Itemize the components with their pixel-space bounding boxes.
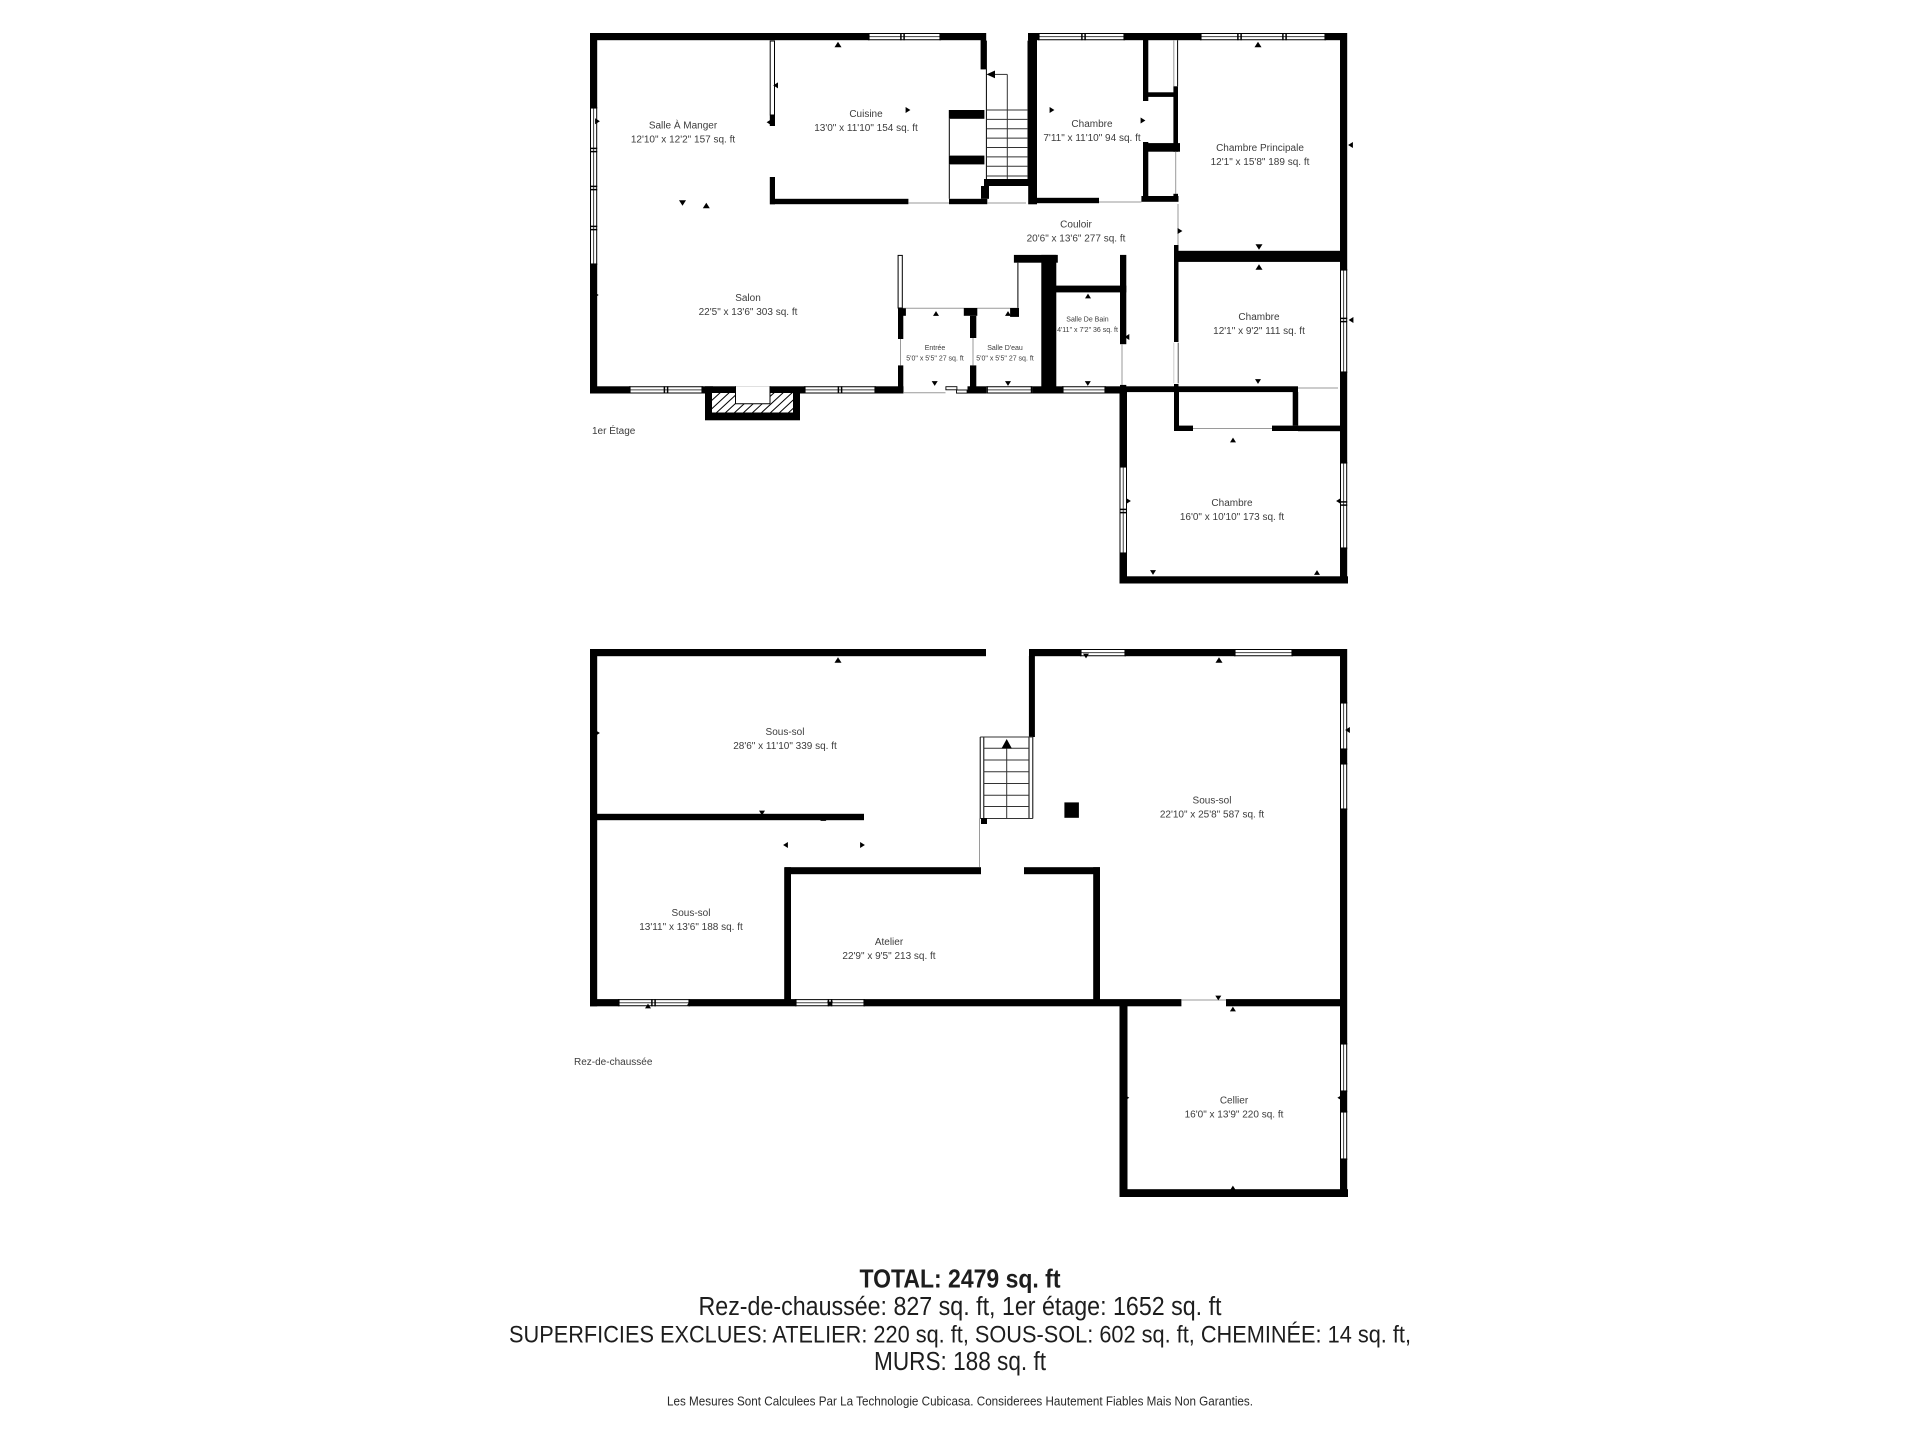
svg-text:Entrée: Entrée	[925, 345, 946, 352]
svg-text:13'11" x 13'6" 188 sq. ft: 13'11" x 13'6" 188 sq. ft	[639, 922, 743, 933]
svg-text:Rez-de-chaussée: Rez-de-chaussée	[574, 1057, 653, 1068]
svg-text:MURS: 188 sq. ft: MURS: 188 sq. ft	[874, 1348, 1046, 1376]
svg-text:5'0" x 5'5" 27 sq. ft: 5'0" x 5'5" 27 sq. ft	[976, 356, 1034, 363]
svg-text:20'6" x 13'6" 277 sq. ft: 20'6" x 13'6" 277 sq. ft	[1027, 234, 1126, 245]
svg-text:12'1" x 15'8" 189 sq. ft: 12'1" x 15'8" 189 sq. ft	[1211, 157, 1310, 168]
svg-text:Salon: Salon	[735, 293, 761, 304]
svg-text:TOTAL: 2479 sq. ft: TOTAL: 2479 sq. ft	[860, 1264, 1061, 1294]
svg-text:12'10" x 12'2" 157 sq. ft: 12'10" x 12'2" 157 sq. ft	[631, 135, 736, 146]
svg-text:Chambre: Chambre	[1211, 498, 1253, 509]
svg-text:Cuisine: Cuisine	[849, 109, 883, 120]
svg-text:28'6" x 11'10" 339 sq. ft: 28'6" x 11'10" 339 sq. ft	[733, 741, 837, 752]
svg-text:Rez-de-chaussée: 827 sq. ft, 1: Rez-de-chaussée: 827 sq. ft, 1er étage: …	[699, 1293, 1222, 1321]
svg-text:22'5" x 13'6" 303 sq. ft: 22'5" x 13'6" 303 sq. ft	[699, 307, 798, 318]
svg-text:SUPERFICIES EXCLUES: ATELIER:: SUPERFICIES EXCLUES: ATELIER: 220 sq. ft…	[509, 1322, 1411, 1349]
svg-text:Sous-sol: Sous-sol	[672, 908, 711, 919]
svg-text:Atelier: Atelier	[875, 937, 904, 948]
svg-text:22'9" x 9'5" 213 sq. ft: 22'9" x 9'5" 213 sq. ft	[842, 951, 935, 962]
svg-text:22'10" x 25'8" 587 sq. ft: 22'10" x 25'8" 587 sq. ft	[1160, 810, 1265, 821]
svg-text:Salle À Manger: Salle À Manger	[649, 119, 718, 132]
svg-text:4'11" x 7'2" 36 sq. ft: 4'11" x 7'2" 36 sq. ft	[1057, 327, 1118, 334]
svg-text:Les Mesures Sont Calculees Par: Les Mesures Sont Calculees Par La Techno…	[667, 1395, 1253, 1409]
svg-text:16'0" x 13'9" 220 sq. ft: 16'0" x 13'9" 220 sq. ft	[1185, 1110, 1284, 1121]
svg-text:Salle De Bain: Salle De Bain	[1066, 317, 1109, 324]
svg-text:1er Étage: 1er Étage	[592, 424, 636, 437]
svg-text:12'1" x 9'2" 111 sq. ft: 12'1" x 9'2" 111 sq. ft	[1213, 326, 1305, 337]
svg-text:Sous-sol: Sous-sol	[1193, 796, 1232, 807]
svg-text:13'0" x 11'10" 154 sq. ft: 13'0" x 11'10" 154 sq. ft	[814, 123, 918, 134]
svg-text:Chambre: Chambre	[1238, 312, 1280, 323]
svg-text:Sous-sol: Sous-sol	[766, 727, 805, 738]
svg-text:5'0" x 5'5" 27 sq. ft: 5'0" x 5'5" 27 sq. ft	[906, 356, 964, 363]
svg-text:Chambre Principale: Chambre Principale	[1216, 143, 1304, 154]
svg-text:Couloir: Couloir	[1060, 220, 1092, 231]
svg-text:16'0" x 10'10" 173 sq. ft: 16'0" x 10'10" 173 sq. ft	[1180, 512, 1285, 523]
svg-text:Salle D'eau: Salle D'eau	[987, 345, 1023, 352]
svg-text:Cellier: Cellier	[1220, 1096, 1249, 1107]
svg-text:7'11" x 11'10" 94 sq. ft: 7'11" x 11'10" 94 sq. ft	[1043, 133, 1140, 144]
svg-text:Chambre: Chambre	[1071, 119, 1113, 130]
